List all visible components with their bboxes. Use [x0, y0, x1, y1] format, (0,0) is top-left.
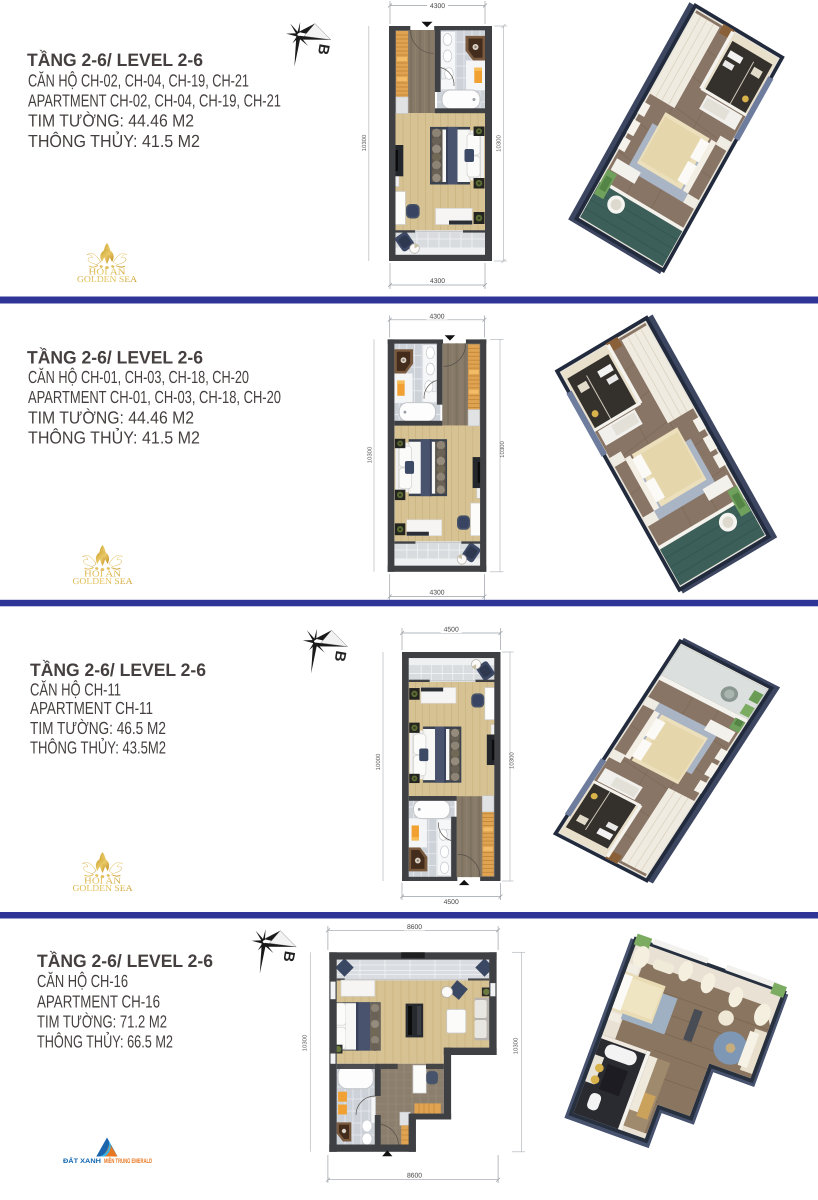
svg-text:TIM TƯỜNG: 46.5 M2: TIM TƯỜNG: 46.5 M2 — [30, 718, 166, 738]
svg-text:TIM TƯỜNG: 44.46 M2: TIM TƯỜNG: 44.46 M2 — [28, 407, 194, 427]
svg-text:4300: 4300 — [430, 3, 445, 10]
svg-text:10300: 10300 — [499, 440, 506, 457]
svg-text:4300: 4300 — [429, 313, 444, 320]
svg-text:10300: 10300 — [302, 1034, 309, 1051]
svg-text:TIM TƯỜNG: 44.46 M2: TIM TƯỜNG: 44.46 M2 — [28, 111, 194, 131]
svg-text:APARTMENT CH-02, CH-04, CH-19,: APARTMENT CH-02, CH-04, CH-19, CH-21 — [28, 91, 281, 111]
svg-text:TIM TƯỜNG: 71.2 M2: TIM TƯỜNG: 71.2 M2 — [37, 1011, 167, 1031]
svg-text:THÔNG THỦY: 41.5 M2: THÔNG THỦY: 41.5 M2 — [28, 428, 200, 448]
svg-text:TẦNG 2-6/ LEVEL 2-6: TẦNG 2-6/ LEVEL 2-6 — [30, 659, 206, 680]
svg-text:TẦNG 2-6/ LEVEL 2-6: TẦNG 2-6/ LEVEL 2-6 — [27, 49, 203, 70]
svg-text:10300: 10300 — [509, 752, 516, 769]
svg-text:10300: 10300 — [513, 1037, 520, 1054]
svg-text:TẦNG 2-6/ LEVEL 2-6: TẦNG 2-6/ LEVEL 2-6 — [27, 347, 203, 368]
svg-text:4300: 4300 — [430, 278, 445, 285]
svg-text:TẦNG 2-6/ LEVEL 2-6: TẦNG 2-6/ LEVEL 2-6 — [37, 950, 213, 971]
svg-text:CĂN HỘ CH-16: CĂN HỘ CH-16 — [37, 971, 128, 991]
svg-text:10300: 10300 — [496, 134, 503, 151]
svg-text:8600: 8600 — [407, 1173, 422, 1180]
svg-text:APARTMENT CH-01, CH-03, CH-18,: APARTMENT CH-01, CH-03, CH-18, CH-20 — [28, 387, 281, 407]
svg-text:4500: 4500 — [444, 627, 459, 634]
svg-text:8600: 8600 — [407, 924, 422, 931]
svg-text:THÔNG THỦY: 66.5 M2: THÔNG THỦY: 66.5 M2 — [37, 1032, 173, 1052]
svg-text:APARTMENT CH-11: APARTMENT CH-11 — [30, 698, 153, 718]
svg-text:MIỀN TRUNG EMERALD: MIỀN TRUNG EMERALD — [104, 1157, 152, 1165]
svg-text:10300: 10300 — [366, 446, 373, 463]
svg-text:CĂN HỘ CH-01, CH-03, CH-18, CH: CĂN HỘ CH-01, CH-03, CH-18, CH-20 — [28, 367, 249, 387]
svg-text:THÔNG THỦY: 41.5 M2: THÔNG THỦY: 41.5 M2 — [28, 131, 200, 151]
svg-text:CĂN HỘ CH-02, CH-04, CH-19, CH: CĂN HỘ CH-02, CH-04, CH-19, CH-21 — [28, 70, 249, 90]
svg-text:10000: 10000 — [375, 753, 382, 770]
svg-text:4300: 4300 — [429, 590, 444, 597]
svg-text:THÔNG THỦY: 43.5M2: THÔNG THỦY: 43.5M2 — [30, 738, 166, 758]
svg-text:4500: 4500 — [444, 899, 459, 906]
svg-text:10300: 10300 — [361, 134, 368, 151]
svg-text:APARTMENT CH-16: APARTMENT CH-16 — [37, 991, 160, 1011]
svg-text:ĐẤT XANH: ĐẤT XANH — [63, 1157, 101, 1165]
svg-text:CĂN HỘ CH-11: CĂN HỘ CH-11 — [30, 679, 121, 699]
